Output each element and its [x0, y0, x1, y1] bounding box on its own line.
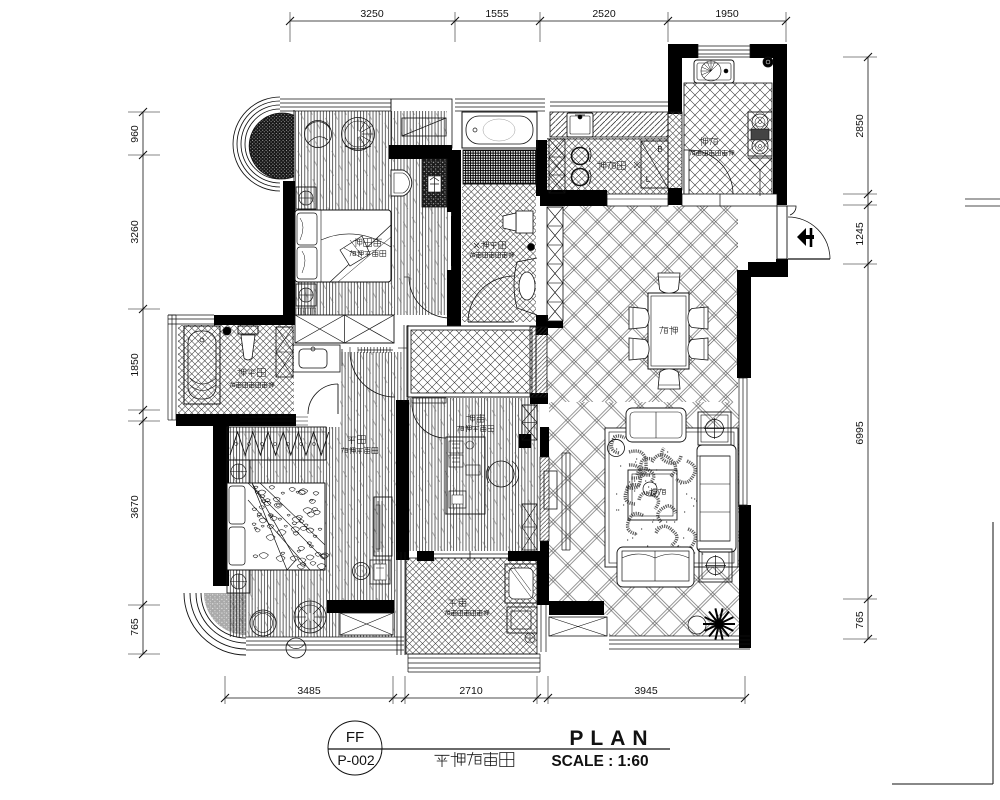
svg-text:3260: 3260 — [129, 220, 141, 244]
svg-text:2710: 2710 — [459, 685, 483, 697]
svg-text:2850: 2850 — [854, 114, 866, 138]
svg-text:B: B — [657, 145, 662, 154]
svg-text:PLAN: PLAN — [569, 727, 654, 750]
svg-text:1245: 1245 — [854, 222, 866, 246]
svg-text:765: 765 — [129, 618, 141, 636]
svg-text:P-002: P-002 — [337, 752, 375, 768]
svg-text:765: 765 — [854, 611, 866, 629]
svg-text:6995: 6995 — [854, 421, 866, 445]
svg-text:3945: 3945 — [634, 685, 658, 697]
svg-text:1950: 1950 — [715, 8, 739, 20]
svg-text:3250: 3250 — [360, 8, 384, 20]
svg-text:FF: FF — [346, 729, 364, 746]
svg-text:960: 960 — [129, 125, 141, 143]
svg-text:3485: 3485 — [297, 685, 321, 697]
svg-text:SCALE : 1:60: SCALE : 1:60 — [551, 753, 648, 770]
svg-text:1850: 1850 — [129, 353, 141, 377]
svg-text:L: L — [646, 175, 651, 184]
svg-text:2520: 2520 — [592, 8, 616, 20]
svg-text:3670: 3670 — [129, 495, 141, 519]
svg-text:1555: 1555 — [485, 8, 509, 20]
